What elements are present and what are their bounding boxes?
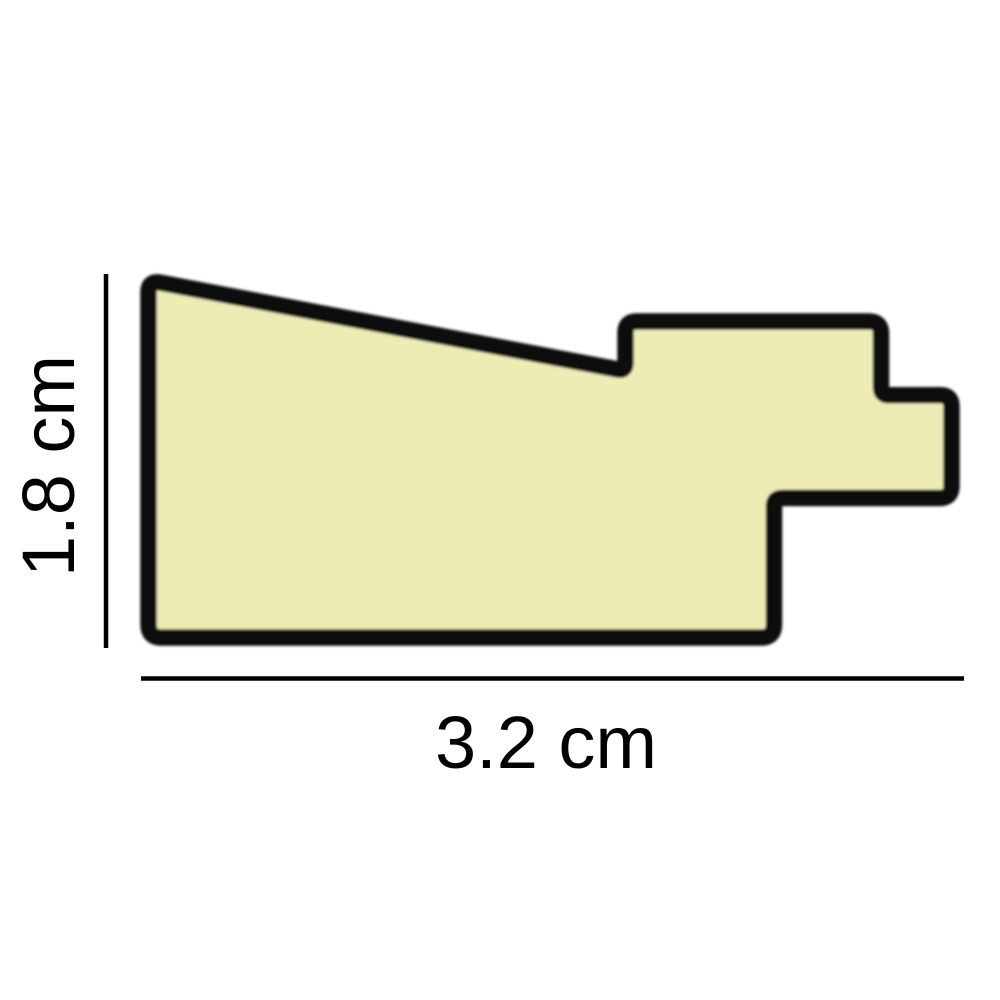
svg-text:1.8 cm: 1.8 cm	[7, 355, 90, 577]
svg-text:3.2 cm: 3.2 cm	[435, 701, 657, 784]
